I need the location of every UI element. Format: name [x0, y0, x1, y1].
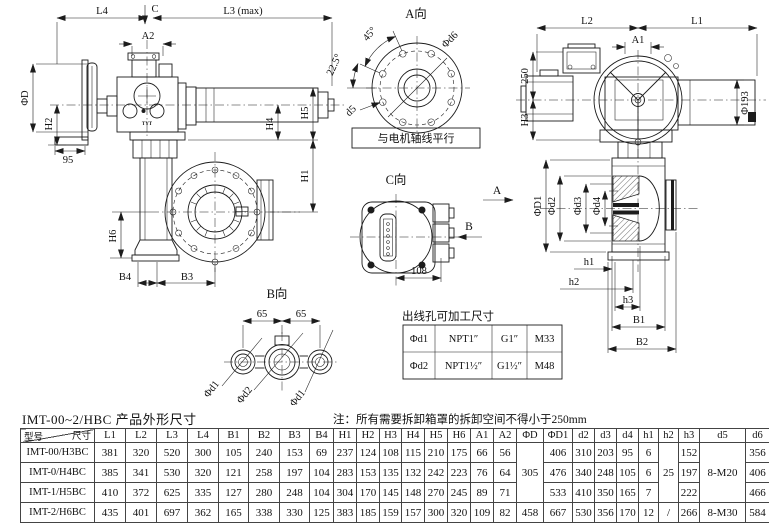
col-header: H5: [425, 429, 448, 443]
dim-h2: H2: [44, 118, 55, 131]
col-header: A1: [471, 429, 494, 443]
dim-cell: 153: [280, 443, 310, 463]
col-header: L4: [188, 429, 219, 443]
dim-c: C: [151, 4, 158, 15]
outlet-cell: G1½″: [497, 361, 522, 372]
dim-cell: 135: [380, 463, 402, 483]
dim-h6: H6: [108, 230, 119, 243]
brand-label: TYT: [142, 122, 153, 127]
col-header: H4: [402, 429, 425, 443]
col-header: H1: [334, 429, 357, 443]
col-header: h1: [639, 429, 659, 443]
dim-95: 95: [63, 155, 74, 166]
technical-drawing: L4 C L3 (max) A2 ΦD H2 95: [0, 0, 769, 405]
outlet-table-title: 出线孔可加工尺寸: [402, 309, 494, 323]
dim-phi-d: ΦD: [20, 90, 31, 106]
dim-l1: L1: [691, 16, 703, 27]
dim-cell: 625: [157, 483, 188, 503]
page-title: IMT-00~2/HBC 产品外形尺寸: [22, 409, 197, 428]
dim-cell: 105: [219, 443, 249, 463]
dim-sh2: h2: [569, 277, 580, 288]
dim-cell: 341: [126, 463, 157, 483]
col-header: L1: [95, 429, 126, 443]
dim-phi193: Φ193: [740, 91, 751, 114]
col-header: L3: [157, 429, 188, 443]
dim-cell: 197: [679, 463, 700, 483]
dim-cell: 406: [746, 463, 769, 483]
dim-cell: 69: [310, 443, 334, 463]
dim-sh1: h1: [584, 257, 595, 268]
outlet-cell: M48: [535, 361, 555, 372]
dim-phi-d4: Φd4: [592, 196, 603, 215]
dim-cell: 197: [280, 463, 310, 483]
dim-cell: 240: [249, 443, 280, 463]
dim-cell: 153: [357, 463, 380, 483]
dim-phi-d1: ΦD1: [533, 196, 544, 217]
dim-cell: 320: [188, 463, 219, 483]
outlet-cell: G1″: [501, 334, 518, 345]
dim-l3: L3 (max): [223, 6, 263, 17]
dim-65b: 65: [296, 309, 307, 320]
dim-cell: 270: [425, 483, 448, 503]
dim-cell: 356: [746, 443, 769, 463]
dim-phi-d6: Φd6: [440, 30, 461, 51]
dim-phi-d3: Φd3: [573, 197, 584, 215]
col-header: h3: [679, 429, 700, 443]
dim-cell: 12: [639, 503, 659, 523]
dim-45deg: 45°: [361, 25, 379, 43]
right-view: L2 L1 A1 250 H3: [516, 16, 766, 272]
dim-cell: 667: [544, 503, 573, 523]
col-header: L2: [126, 429, 157, 443]
dim-cell: 266: [679, 503, 700, 523]
dim-cell: 7: [639, 483, 659, 503]
dim-a2: A2: [142, 31, 155, 42]
dim-cell: 148: [402, 483, 425, 503]
dim-cell: 222: [679, 483, 700, 503]
dim-cell: 320: [126, 443, 157, 463]
col-header: ΦD: [517, 429, 544, 443]
view-b-title: B向: [267, 286, 288, 301]
dim-cell: 310: [573, 443, 595, 463]
dim-cell: 330: [280, 503, 310, 523]
dim-cell: 320: [448, 503, 471, 523]
view-c: C向 B 108: [350, 172, 482, 286]
dim-cell: 410: [573, 483, 595, 503]
dim-gland-d1b: Φd1: [288, 388, 308, 405]
dim-h5: H5: [300, 107, 311, 120]
dim-cell: 105: [617, 463, 639, 483]
model-cell: IMT-1/H5BC: [21, 483, 95, 503]
dim-cell: 383: [334, 503, 357, 523]
dim-b3: B3: [181, 272, 193, 283]
dim-cell: 159: [380, 503, 402, 523]
dim-a1: A1: [632, 35, 645, 46]
dim-cell: 520: [157, 443, 188, 463]
motor-axis-note: 与电机轴线平行: [378, 131, 455, 145]
dim-cell: 466: [746, 483, 769, 503]
dim-cell: 210: [425, 443, 448, 463]
view-c-title: C向: [386, 172, 407, 187]
dim-cell: 458: [517, 503, 544, 523]
dim-cell: 132: [402, 463, 425, 483]
spec-table-head: 尺寸型号L1L2L3L4B1B2B3B4H1H2H3H4H5H6A1A2ΦDΦD…: [21, 429, 769, 443]
col-header: d6: [746, 429, 769, 443]
section-view: ΦD1 Φd2 Φd3 Φd4 A h1 h2 h3 B1 B2: [483, 158, 700, 353]
note: 注：所有需要拆卸箱罩的拆卸空间不得小于250mm: [333, 411, 587, 427]
dim-sh3: h3: [623, 295, 634, 306]
dim-cell: 8-M20: [700, 443, 746, 503]
col-header: h2: [659, 429, 679, 443]
dim-cell: 170: [357, 483, 380, 503]
dim-cell: 66: [471, 443, 494, 463]
dim-cell: 104: [310, 463, 334, 483]
dim-cell: 248: [595, 463, 617, 483]
col-header: d4: [617, 429, 639, 443]
dim-cell: 175: [448, 443, 471, 463]
dim-cell: 406: [544, 443, 573, 463]
dim-cell: 237: [334, 443, 357, 463]
col-header: H3: [380, 429, 402, 443]
dim-l4: L4: [96, 6, 108, 17]
dim-cell: 76: [471, 463, 494, 483]
section-arrow-a: A: [493, 185, 502, 197]
dim-cell: 300: [188, 443, 219, 463]
col-header: d3: [595, 429, 617, 443]
dim-cell: 300: [425, 503, 448, 523]
dim-cell: 362: [188, 503, 219, 523]
dim-cell: 64: [494, 463, 517, 483]
dim-cell: 25: [659, 443, 679, 503]
dim-cell: 410: [95, 483, 126, 503]
dim-cell: 145: [380, 483, 402, 503]
table-row: IMT-0/H4BC385341530320121258197104283153…: [21, 463, 769, 483]
dim-l2: L2: [581, 16, 593, 27]
dim-d5: d5: [344, 104, 359, 119]
dim-cell: 372: [126, 483, 157, 503]
dim-gland-d1a: Φd1: [202, 379, 222, 400]
view-a: A向 Φd6 45° 22.5° d5 与电机轴线平行: [325, 6, 480, 148]
dim-cell: 6: [639, 463, 659, 483]
dim-cell: 104: [310, 483, 334, 503]
dim-cell: 283: [334, 463, 357, 483]
dim-cell: 152: [679, 443, 700, 463]
dim-h1: H1: [300, 170, 311, 183]
dim-cell: 356: [595, 503, 617, 523]
dim-cell: 124: [357, 443, 380, 463]
dim-cell: 242: [425, 463, 448, 483]
corner-cell: 尺寸型号: [21, 429, 95, 443]
dim-cell: 530: [157, 463, 188, 483]
dim-cell: 82: [494, 503, 517, 523]
dim-cell: 121: [219, 463, 249, 483]
drawing-page: L4 C L3 (max) A2 ΦD H2 95: [0, 0, 769, 524]
dim-cell: 71: [494, 483, 517, 503]
outlet-cell: M33: [535, 334, 555, 345]
dim-cell: 533: [544, 483, 573, 503]
col-header: B4: [310, 429, 334, 443]
dim-cell: 203: [595, 443, 617, 463]
dim-phi-d2: Φd2: [547, 197, 558, 215]
dim-108: 108: [411, 266, 427, 277]
dim-cell: 109: [471, 503, 494, 523]
dim-cell: 476: [544, 463, 573, 483]
dim-cell: 335: [188, 483, 219, 503]
view-b: B向 65 65 Φd1 Φd2 Φd1: [202, 286, 338, 405]
dim-22-5deg: 22.5°: [325, 52, 345, 77]
model-cell: IMT-00/H3BC: [21, 443, 95, 463]
dim-cell: 350: [595, 483, 617, 503]
dim-cell: 305: [517, 443, 544, 503]
dim-cell: 258: [249, 463, 280, 483]
dim-cell: 6: [639, 443, 659, 463]
dim-cell: 304: [334, 483, 357, 503]
dim-cell: 89: [471, 483, 494, 503]
outlet-cell: NPT1½″: [445, 361, 482, 372]
dim-cell: 108: [380, 443, 402, 463]
dim-cell: 115: [402, 443, 425, 463]
table-row: IMT-00/H3BC38132052030010524015369237124…: [21, 443, 769, 463]
dim-cell: 530: [573, 503, 595, 523]
dim-cell: 584: [746, 503, 769, 523]
col-header: d5: [700, 429, 746, 443]
dim-cell: 697: [157, 503, 188, 523]
dim-cell: 245: [448, 483, 471, 503]
model-cell: IMT-0/H4BC: [21, 463, 95, 483]
table-row: IMT-2/H6BC435401697362165338330125383185…: [21, 503, 769, 523]
dim-cell: 381: [95, 443, 126, 463]
table-row: IMT-1/H5BC410372625335127280248104304170…: [21, 483, 769, 503]
model-cell: IMT-2/H6BC: [21, 503, 95, 523]
dim-h4: H4: [265, 117, 276, 131]
outlet-cell: Φd2: [410, 361, 428, 372]
dim-cell: 223: [448, 463, 471, 483]
col-header: A2: [494, 429, 517, 443]
col-header: ΦD1: [544, 429, 573, 443]
dim-h3: H3: [520, 114, 531, 127]
front-view: L4 C L3 (max) A2 ΦD H2 95: [20, 4, 345, 287]
dim-cell: 165: [219, 503, 249, 523]
dim-cell: 125: [310, 503, 334, 523]
spec-table: 尺寸型号L1L2L3L4B1B2B3B4H1H2H3H4H5H6A1A2ΦDΦD…: [20, 428, 769, 523]
dim-cell: 338: [249, 503, 280, 523]
dim-b4: B4: [119, 272, 132, 283]
dim-gland-d2: Φd2: [235, 385, 255, 405]
dim-cell: 8-M30: [700, 503, 746, 523]
spec-table-body: IMT-00/H3BC38132052030010524015369237124…: [21, 443, 769, 523]
dim-cell: 385: [95, 463, 126, 483]
dim-cell: 280: [249, 483, 280, 503]
dim-cell: /: [659, 503, 679, 523]
view-a-title: A向: [405, 6, 427, 21]
col-header: B2: [249, 429, 280, 443]
dim-cell: 95: [617, 443, 639, 463]
dim-cell: 127: [219, 483, 249, 503]
dim-cell: 165: [617, 483, 639, 503]
dim-cell: 157: [402, 503, 425, 523]
col-header: B3: [280, 429, 310, 443]
dim-65a: 65: [257, 309, 268, 320]
caption-row: IMT-00~2/HBC 产品外形尺寸 注：所有需要拆卸箱罩的拆卸空间不得小于2…: [0, 405, 769, 427]
outlet-size-table: 出线孔可加工尺寸 Φd1 NPT1″ G1″ M33 Φd2 NPT1½″ G1…: [402, 309, 562, 379]
col-header: d2: [573, 429, 595, 443]
outlet-cell: Φd1: [410, 334, 428, 345]
col-header: H2: [357, 429, 380, 443]
dim-cell: 170: [617, 503, 639, 523]
dim-cell: 401: [126, 503, 157, 523]
dim-b2: B2: [636, 337, 648, 348]
view-b-arrow: B: [465, 221, 473, 233]
dim-b1: B1: [633, 315, 645, 326]
dim-cell: 435: [95, 503, 126, 523]
dim-cell: 185: [357, 503, 380, 523]
dim-cell: 248: [280, 483, 310, 503]
dim-cell: 56: [494, 443, 517, 463]
col-header: H6: [448, 429, 471, 443]
col-header: B1: [219, 429, 249, 443]
dim-cell: 340: [573, 463, 595, 483]
outlet-cell: NPT1″: [449, 334, 478, 345]
